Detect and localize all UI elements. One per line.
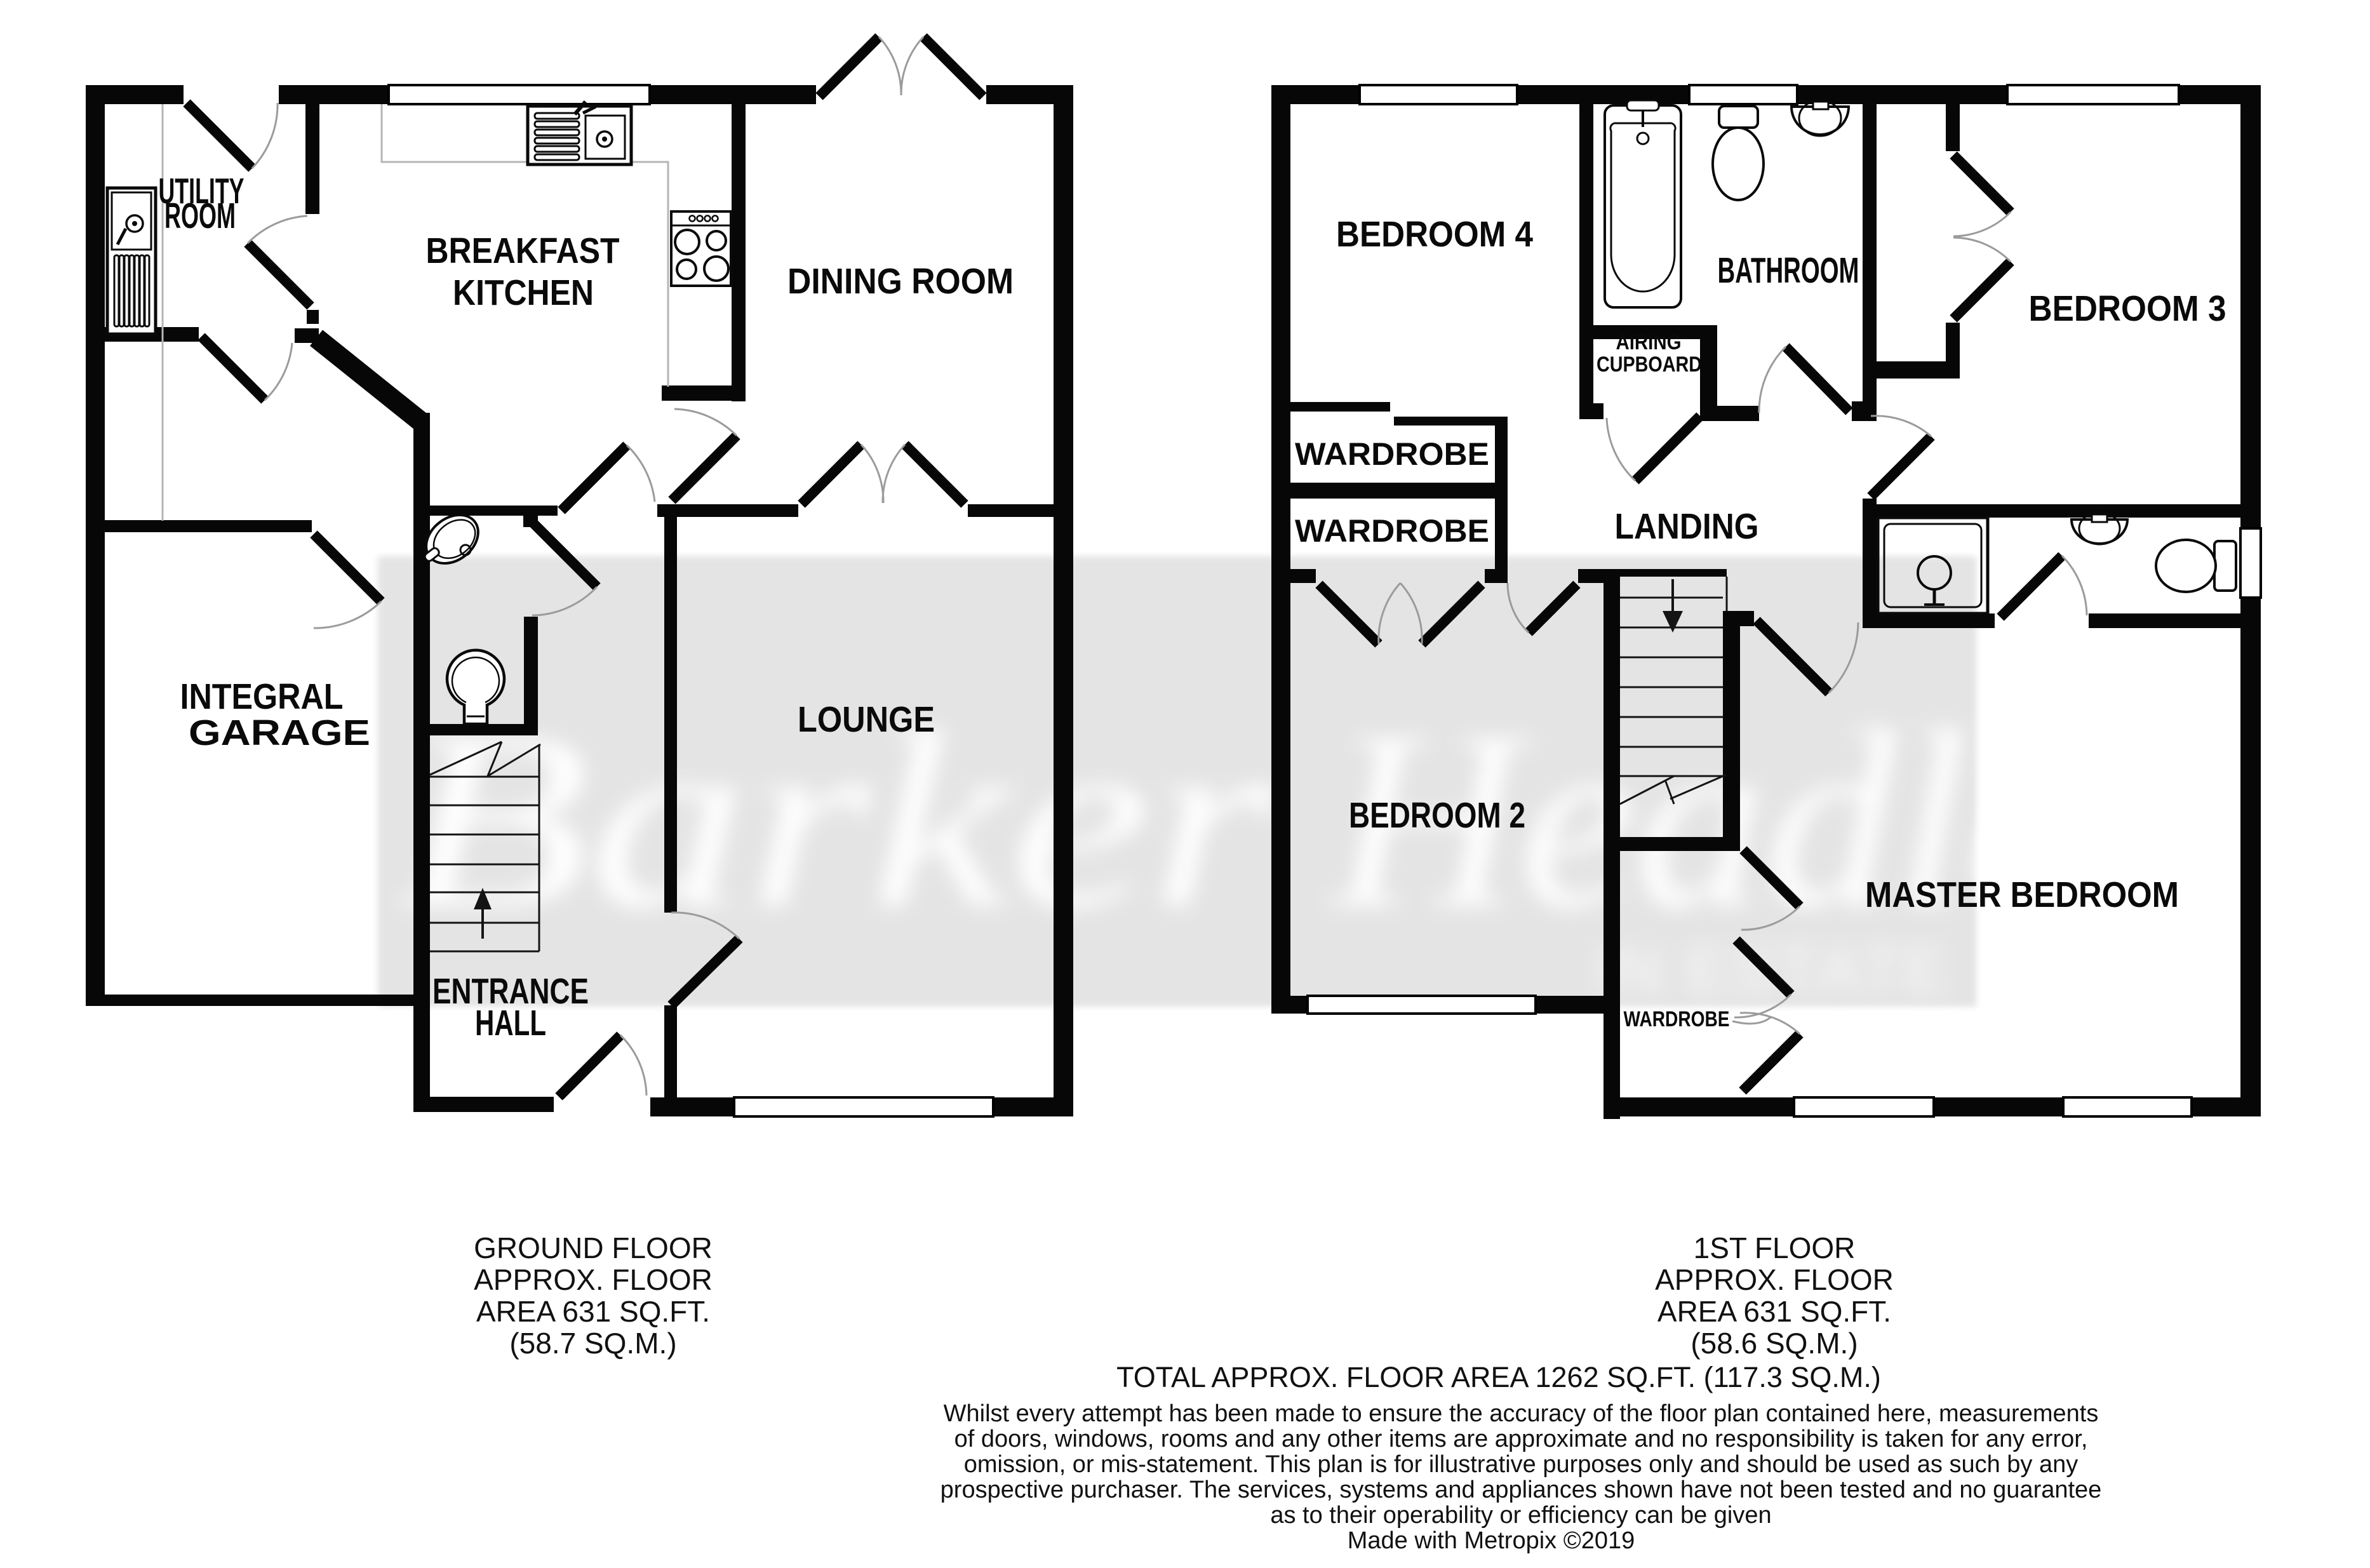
- svg-text:DINING ROOM: DINING ROOM: [787, 261, 1014, 302]
- svg-text:WARDROBE: WARDROBE: [1295, 513, 1489, 549]
- svg-text:APPROX. FLOOR: APPROX. FLOOR: [1655, 1263, 1894, 1296]
- svg-text:LANDING: LANDING: [1615, 506, 1759, 547]
- svg-text:AREA 631 SQ.FT.: AREA 631 SQ.FT.: [476, 1295, 710, 1328]
- svg-text:(58.7 SQ.M.): (58.7 SQ.M.): [509, 1327, 676, 1360]
- svg-text:KITCHEN: KITCHEN: [453, 272, 594, 313]
- svg-text:APPROX. FLOOR: APPROX. FLOOR: [474, 1263, 713, 1296]
- svg-text:BEDROOM 2: BEDROOM 2: [1349, 795, 1525, 836]
- svg-text:LOUNGE: LOUNGE: [798, 699, 935, 740]
- svg-text:HALL: HALL: [475, 1003, 546, 1043]
- svg-text:Made with Metropix ©2019: Made with Metropix ©2019: [1348, 1527, 1635, 1554]
- svg-text:ROOM: ROOM: [164, 196, 236, 236]
- svg-text:as to their operability or eff: as to their operability or efficiency ca…: [1270, 1502, 1771, 1529]
- svg-text:AIRING: AIRING: [1616, 330, 1682, 354]
- svg-text:1ST FLOOR: 1ST FLOOR: [1694, 1231, 1856, 1264]
- svg-text:TOTAL APPROX. FLOOR AREA 1262: TOTAL APPROX. FLOOR AREA 1262 SQ.FT. (11…: [1116, 1361, 1881, 1393]
- svg-text:Whilst every attempt has been: Whilst every attempt has been made to en…: [944, 1400, 2099, 1427]
- svg-text:of doors, windows, rooms and a: of doors, windows, rooms and any other i…: [954, 1426, 2088, 1452]
- svg-text:BATHROOM: BATHROOM: [1718, 250, 1859, 291]
- svg-text:omission, or mis-statement. Th: omission, or mis-statement. This plan is…: [964, 1451, 2079, 1478]
- svg-text:INTEGRAL: INTEGRAL: [180, 676, 344, 717]
- svg-text:GARAGE: GARAGE: [189, 713, 370, 753]
- svg-text:BREAKFAST: BREAKFAST: [426, 231, 620, 271]
- svg-text:MASTER BEDROOM: MASTER BEDROOM: [1865, 874, 2179, 915]
- svg-text:prospective purchaser. The ser: prospective purchaser. The services, sys…: [941, 1477, 2102, 1503]
- svg-text:BEDROOM 4: BEDROOM 4: [1336, 214, 1533, 255]
- svg-text:CUPBOARD: CUPBOARD: [1597, 352, 1702, 377]
- svg-text:BEDROOM 3: BEDROOM 3: [2029, 288, 2226, 329]
- svg-text:(58.6 SQ.M.): (58.6 SQ.M.): [1690, 1327, 1858, 1360]
- svg-text:GROUND FLOOR: GROUND FLOOR: [474, 1231, 713, 1264]
- svg-text:WARDROBE: WARDROBE: [1624, 1007, 1730, 1031]
- svg-text:WARDROBE: WARDROBE: [1295, 436, 1489, 472]
- svg-text:AREA 631 SQ.FT.: AREA 631 SQ.FT.: [1657, 1295, 1891, 1328]
